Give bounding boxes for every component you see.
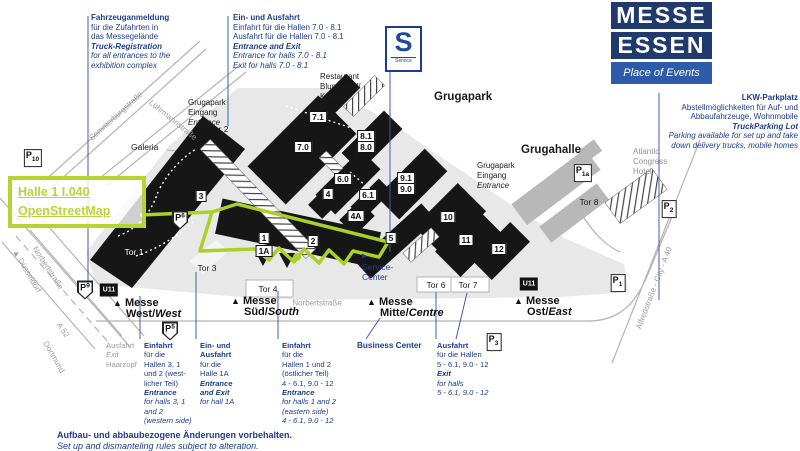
entrance-messe-sued: ▲ Messe Süd/South: [231, 296, 299, 317]
restaurant-label: Restaurant Blumenhof/ Kurhaus: [320, 72, 360, 101]
p-number: 5: [171, 323, 175, 330]
legend-line: (östlicher Teil): [282, 369, 336, 378]
hall-10: 10: [440, 211, 455, 223]
legend-truck-parking: LKW-Parkplatz Abstellmöglichkeiten für A…: [661, 93, 798, 151]
messe-essen-site-map: MESSE ESSEN Place of Events Fahrzeuganme…: [0, 0, 800, 451]
entrance-en: West: [155, 308, 181, 320]
legend-line: Haarzopf: [106, 360, 137, 369]
legend-line: for all entrances to the: [91, 51, 170, 61]
legend-line: and 2: [144, 407, 192, 416]
legend-line: Ausfahrt für die Hallen 7.0 - 8.1: [233, 32, 344, 42]
hall-1a: 1A: [256, 245, 273, 257]
legend-line: 4 - 6.1, 9.0 - 12: [282, 416, 336, 425]
legend-line: und 2 (west-: [144, 369, 192, 378]
entrance-en: Centre: [409, 307, 444, 319]
hall-7-1: 7.1: [309, 111, 327, 123]
legend-line: Ein- und: [200, 341, 234, 350]
legend-line: (eastern side): [282, 407, 336, 416]
restaurant-line: Restaurant: [320, 72, 360, 82]
sbahn-service-label: Service: [391, 57, 416, 64]
legend-line: for halls 1 and 2: [282, 397, 336, 406]
legend-line: Entrance and Exit: [233, 42, 344, 52]
sbahn-station-icon: S Service: [385, 26, 422, 72]
hall-6-1: 6.1: [359, 189, 377, 201]
legend-line: (western side): [144, 416, 192, 425]
legend-line: für die Zufahrten in: [91, 23, 170, 33]
galeria-label: Galeria: [131, 143, 158, 153]
legend-line: für die Hallen: [437, 350, 489, 359]
hall-8-0: 8.0: [357, 141, 375, 153]
restaurant-line: Blumenhof/: [320, 82, 360, 92]
legend-line: 5 - 6.1, 9.0 - 12: [437, 360, 489, 369]
grugapark-label: Grugapark: [434, 93, 492, 103]
parking-p1a-icon: P1a: [574, 164, 592, 182]
grugapark-entrance-west-label: Grugapark Eingang Entrance: [188, 98, 226, 127]
p-number: 3: [495, 340, 499, 347]
messe-essen-logo: MESSE ESSEN Place of Events: [611, 2, 712, 84]
street-norbertstrasse-south: Norbertstraße: [292, 299, 341, 308]
logo-tagline: Place of Events: [611, 62, 712, 84]
disclaimer-de: Aufbau- und abbaubezogene Änderungen vor…: [57, 430, 292, 441]
triangle-marker-icon: ▲: [367, 297, 376, 307]
legend-line: das Messegelände: [91, 32, 170, 42]
legend-line: Truck-Registration: [91, 42, 170, 52]
ubahn-u11-east-icon: U11: [520, 278, 538, 291]
legend-line: and Exit: [200, 388, 234, 397]
legend-truck-registration: Fahrzeuganmeldung für die Zufahrten in d…: [91, 13, 170, 71]
entrance-de: Ost/: [527, 306, 548, 318]
legend-line: Entrance: [282, 388, 336, 397]
legend-line: Hallen 3, 1: [144, 360, 192, 369]
hotel-line: Hotel: [633, 167, 667, 177]
legend-line: für die: [144, 350, 192, 359]
gate-tor-3: Tor 3: [198, 263, 217, 273]
hall-4: 4: [323, 188, 334, 200]
entrance-line: Eingang: [188, 108, 226, 118]
hall-2: 2: [308, 235, 319, 247]
p-number: 1: [619, 281, 623, 288]
entrance-de: West/: [126, 308, 155, 320]
entrance-messe-mitte: ▲ Messe Mitte/Centre: [367, 297, 444, 318]
legend-line: für die: [200, 360, 234, 369]
hall-1: 1: [259, 232, 270, 244]
openstreetmap-link[interactable]: OpenStreetMap: [18, 202, 136, 221]
gate-tor-8: Tor 8: [580, 197, 599, 207]
hotel-line: Congress: [633, 157, 667, 167]
gate-tor-1: Tor 1: [125, 247, 144, 257]
hall-7-0: 7.0: [294, 141, 312, 153]
p-number: 2: [670, 207, 674, 214]
gate-tor-2: Tor 2: [210, 124, 229, 134]
service-center-label: ▶ Service- Center: [362, 252, 393, 282]
entrance-messe-ost: ▲ Messe Ost/East: [514, 296, 572, 317]
gate-tor-4: Tor 4: [259, 284, 278, 294]
disclaimer: Aufbau- und abbaubezogene Änderungen vor…: [57, 430, 292, 451]
hall-11: 11: [459, 234, 474, 246]
legend-line: Parking available for set up and take: [661, 131, 798, 141]
grugapark-entrance-east-label: Grugapark Eingang Entrance: [477, 161, 515, 190]
entrance-line: Grugapark: [477, 161, 515, 171]
legend-line: Abbaufahrzeuge, Wohnmobile: [661, 112, 798, 122]
legend-line: Exit: [106, 350, 137, 359]
triangle-marker-icon: ▲: [231, 296, 240, 306]
parking-p3-icon: P3: [487, 333, 502, 351]
legend-line: 5 - 6.1, 9.0 - 12: [437, 388, 489, 397]
legend-line: Einfahrt: [282, 341, 336, 350]
legend-exit-haarzopf: Ausfahrt Exit Haarzopf: [106, 341, 137, 369]
parking-p1-icon: P1: [611, 274, 626, 292]
hotel-label: Atlantic Congress Hotel: [633, 147, 667, 176]
legend-east-entrance: Einfahrt für die Hallen 1 und 2 (östlich…: [282, 341, 336, 426]
triangle-marker-icon: ▲: [113, 298, 122, 308]
p-number: 6: [181, 212, 185, 219]
entrance-de: Mitte/: [380, 307, 409, 319]
p-number: 10: [32, 156, 39, 163]
legend-top-entrance-exit: Ein- und Ausfahrt Einfahrt für die Halle…: [233, 13, 344, 71]
entrance-de: Süd/: [244, 306, 268, 318]
parking-p2-icon: P2: [662, 200, 677, 218]
gate-tor-6: Tor 6: [427, 280, 446, 290]
legend-line: Entrance: [200, 379, 234, 388]
hall1-room-link[interactable]: Halle 1 I.040: [18, 183, 136, 202]
legend-line: Entrance for halls 7.0 - 8.1: [233, 51, 344, 61]
service-center-arrow-icon: ▶: [362, 252, 393, 262]
hall-9-0: 9.0: [397, 183, 415, 195]
legend-line: Ausfahrt: [200, 350, 234, 359]
entrance-en: East: [548, 306, 571, 318]
ubahn-u11-west-icon: U11: [100, 284, 118, 297]
legend-line: Einfahrt für die Hallen 7.0 - 8.1: [233, 23, 344, 33]
legend-line: for halls 3, 1: [144, 397, 192, 406]
entrance-line: Grugapark: [188, 98, 226, 108]
legend-line: down delivery trucks, mobile homes: [661, 141, 798, 151]
legend-line: Ausfahrt: [437, 341, 489, 350]
legend-line: for hall 1A: [200, 397, 234, 406]
legend-line: Einfahrt: [144, 341, 192, 350]
p-number: 9: [86, 282, 90, 289]
legend-line: Exit: [437, 369, 489, 378]
legend-line: Hallen 1 und 2: [282, 360, 336, 369]
legend-title: Fahrzeuganmeldung: [91, 13, 170, 23]
legend-line: Exit for halls 7.0 - 8.1: [233, 61, 344, 71]
parking-p10-icon: P10: [24, 149, 42, 167]
legend-line: licher Teil): [144, 379, 192, 388]
legend-line: Entrance: [144, 388, 192, 397]
legend-line: 4 - 6.1, 9.0 - 12: [282, 379, 336, 388]
entrance-line: Entrance: [477, 181, 515, 191]
legend-title: Ein- und Ausfahrt: [233, 13, 344, 23]
legend-line: exhibition complex: [91, 61, 170, 71]
legend-hall1a-entrance-exit: Ein- und Ausfahrt für die Halle 1A Entra…: [200, 341, 234, 407]
hall-3: 3: [196, 190, 207, 202]
disclaimer-en: Set up and dismanteling rules subject to…: [57, 441, 292, 451]
legend-east-exit: Ausfahrt für die Hallen 5 - 6.1, 9.0 - 1…: [437, 341, 489, 397]
hotel-line: Atlantic: [633, 147, 667, 157]
sbahn-letter: S: [387, 28, 420, 57]
legend-line: Halle 1A: [200, 369, 234, 378]
legend-title: LKW-Parkplatz: [661, 93, 798, 103]
legend-business-center: Business Center: [357, 341, 422, 350]
legend-line: TruckParking Lot: [661, 122, 798, 132]
entrance-en: South: [268, 306, 299, 318]
service-center-line: Center: [362, 272, 393, 282]
grugahalle-label: Grugahalle: [521, 146, 581, 156]
entrance-messe-west: ▲ Messe West/West: [113, 298, 181, 319]
logo-line-1: MESSE: [611, 2, 712, 29]
entrance-line: Eingang: [477, 171, 515, 181]
hall-5: 5: [386, 232, 397, 244]
legend-west-entrance: Einfahrt für die Hallen 3, 1 und 2 (west…: [144, 341, 192, 426]
legend-line: für die: [282, 350, 336, 359]
triangle-marker-icon: ▲: [514, 296, 523, 306]
restaurant-line: Kurhaus: [320, 92, 360, 102]
hall-12: 12: [491, 243, 506, 255]
legend-line: for halls: [437, 379, 489, 388]
legend-line: Abstellmöglichkeiten für Auf- und: [661, 103, 798, 113]
p-number: 1a: [582, 171, 589, 178]
legend-line: Ausfahrt: [106, 341, 137, 350]
map-popup-hall1: Halle 1 I.040 OpenStreetMap: [8, 176, 146, 228]
gate-tor-7: Tor 7: [459, 280, 478, 290]
logo-line-2: ESSEN: [611, 32, 712, 59]
service-center-line: Service-: [362, 262, 393, 272]
hall-6-0: 6.0: [334, 173, 352, 185]
hall-4a: 4A: [348, 210, 365, 222]
